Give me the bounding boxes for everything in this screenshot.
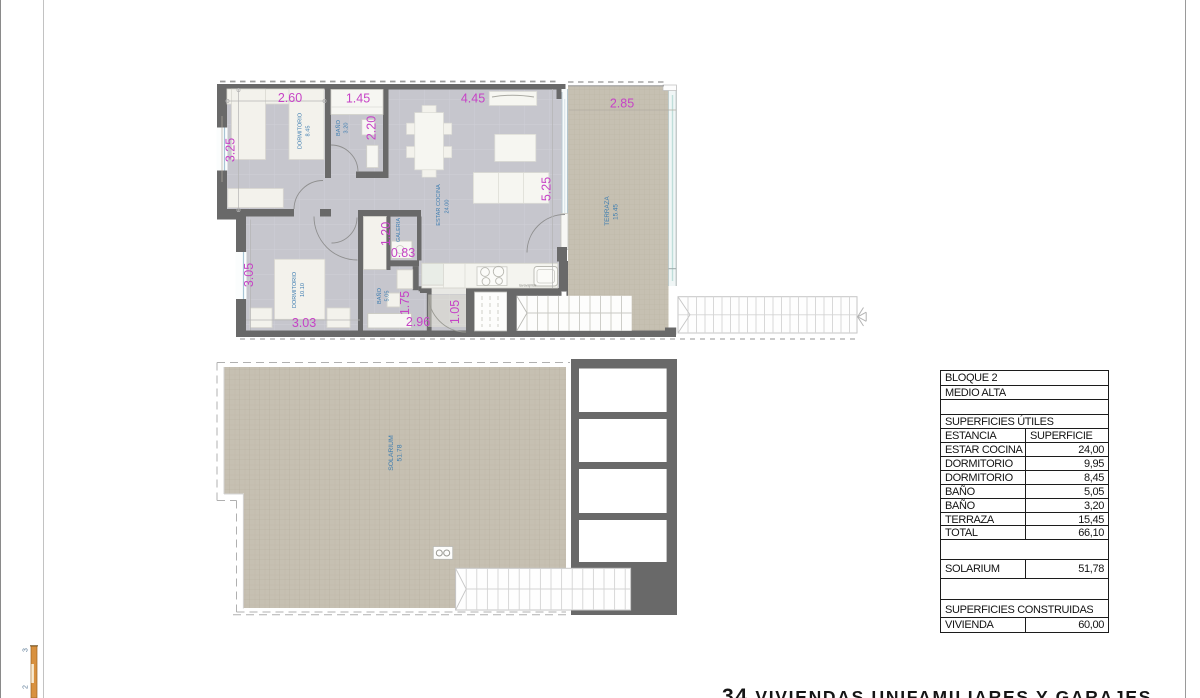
svg-text:BAÑO: BAÑO	[376, 287, 383, 304]
svg-text:3.05: 3.05	[242, 263, 256, 287]
svg-text:24.00: 24.00	[445, 200, 451, 214]
svg-text:2.20: 2.20	[365, 116, 379, 140]
svg-text:2.60: 2.60	[278, 91, 302, 105]
svg-text:51.78: 51.78	[397, 444, 404, 461]
svg-text:5.25: 5.25	[540, 177, 554, 201]
svg-text:2: 2	[23, 685, 30, 689]
svg-text:SOLARIUM: SOLARIUM	[388, 435, 395, 471]
svg-text:1.45: 1.45	[346, 92, 370, 106]
svg-text:0.83: 0.83	[391, 246, 415, 260]
svg-text:1.05: 1.05	[448, 300, 462, 324]
svg-text:2.96: 2.96	[406, 315, 430, 329]
svg-text:GALERIA: GALERIA	[396, 218, 402, 243]
svg-text:3.20: 3.20	[344, 123, 350, 134]
svg-text:4.45: 4.45	[461, 92, 485, 106]
svg-text:DORMITORIO: DORMITORIO	[298, 112, 304, 149]
svg-text:TERRAZA: TERRAZA	[604, 196, 611, 226]
svg-text:3: 3	[23, 648, 30, 652]
svg-text:BAÑO: BAÑO	[335, 119, 342, 136]
svg-text:ESTAR COCINA: ESTAR COCINA	[436, 184, 442, 226]
svg-text:5.05: 5.05	[385, 291, 391, 302]
svg-text:lavavajillas: lavavajillas	[519, 284, 537, 288]
svg-text:3.25: 3.25	[224, 138, 238, 162]
svg-text:15.45: 15.45	[613, 204, 620, 220]
svg-text:1.20: 1.20	[379, 222, 393, 246]
svg-text:8.45: 8.45	[306, 126, 312, 137]
svg-text:3.03: 3.03	[292, 316, 316, 330]
svg-text:10.10: 10.10	[300, 283, 306, 297]
svg-text:1.75: 1.75	[398, 291, 412, 315]
svg-text:DORMITORIO: DORMITORIO	[292, 271, 298, 308]
svg-text:2.85: 2.85	[610, 97, 634, 111]
